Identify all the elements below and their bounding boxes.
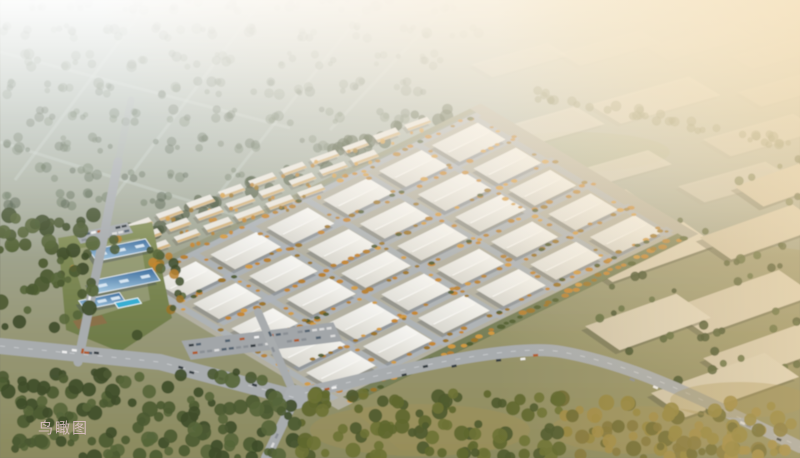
aerial-rendering-figure: 鸟瞰图 — [0, 0, 800, 458]
caption-label: 鸟瞰图 — [38, 419, 89, 437]
atmosphere-haze — [0, 0, 800, 458]
aerial-rendering: 鸟瞰图 — [0, 0, 800, 458]
